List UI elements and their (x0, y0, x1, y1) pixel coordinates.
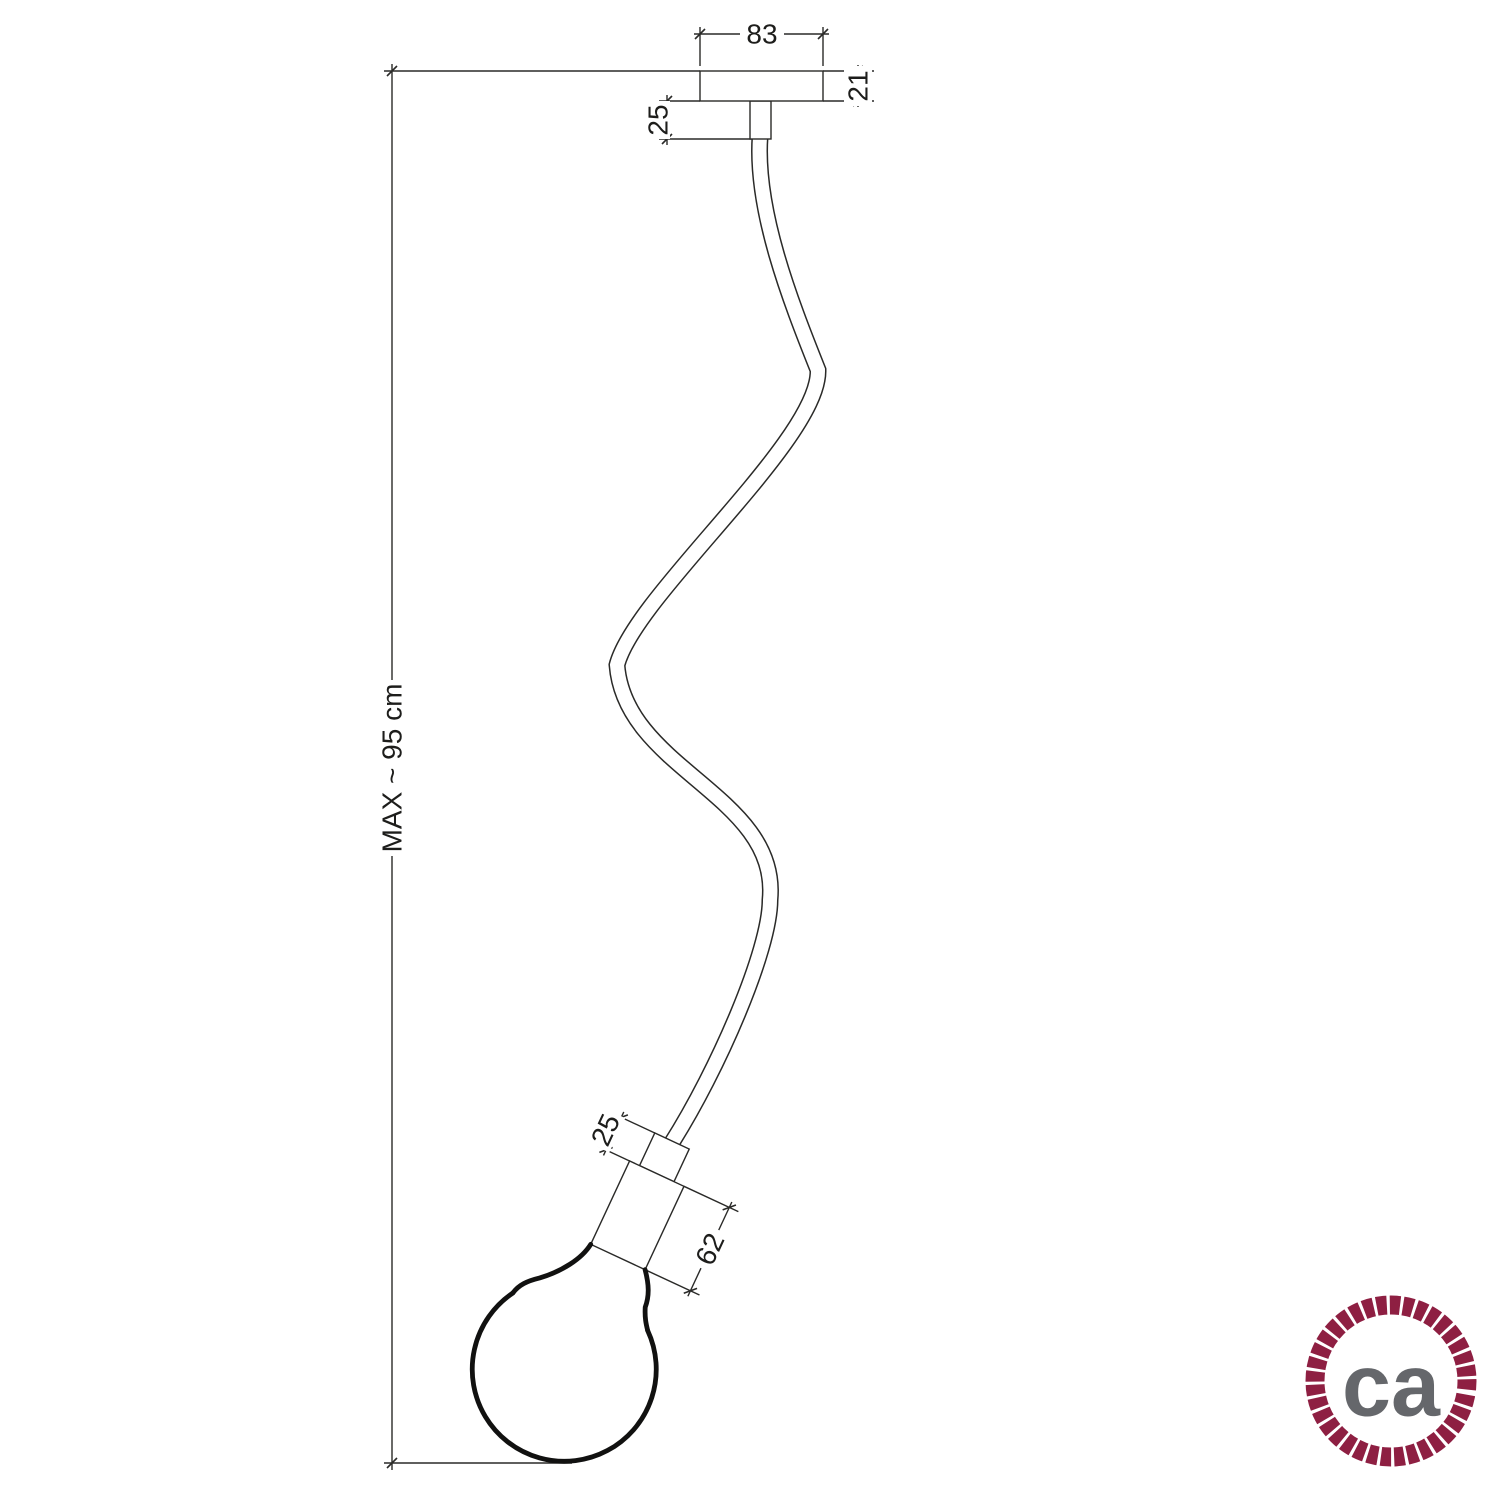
bulb-neck-left (513, 1223, 591, 1314)
logo-text: ca (1342, 1336, 1441, 1435)
canopy-stem (750, 101, 771, 139)
stem-height-dimension: 25 (643, 95, 753, 145)
dimension-tick (684, 1284, 697, 1297)
max-length-label: MAX ~ 95 cm (377, 684, 408, 853)
technical-drawing-svg: MAX ~ 95 cm 83 21 25 (0, 0, 1500, 1500)
light-bulb (442, 1218, 700, 1492)
flex-cable (617, 137, 818, 1144)
brand-logo: ca (1305, 1295, 1477, 1467)
canopy (700, 71, 823, 101)
stem-height-label: 25 (643, 104, 674, 135)
dimension-tick (723, 1201, 736, 1214)
canopy-width-label: 83 (746, 19, 777, 50)
canopy-height-dimension: 21 (823, 65, 874, 107)
canopy-height-label: 21 (843, 70, 874, 101)
collar-width-label: 25 (585, 1109, 626, 1150)
bulb-globe (442, 1267, 677, 1492)
canopy-width-dimension: 83 (694, 19, 829, 67)
cable-fill (617, 137, 818, 1144)
drawing-canvas: MAX ~ 95 cm 83 21 25 (0, 0, 1500, 1500)
ceiling-rose (700, 71, 823, 139)
socket-assembly: 25 62 (442, 1096, 761, 1493)
max-length-dimension: MAX ~ 95 cm (376, 64, 700, 1470)
